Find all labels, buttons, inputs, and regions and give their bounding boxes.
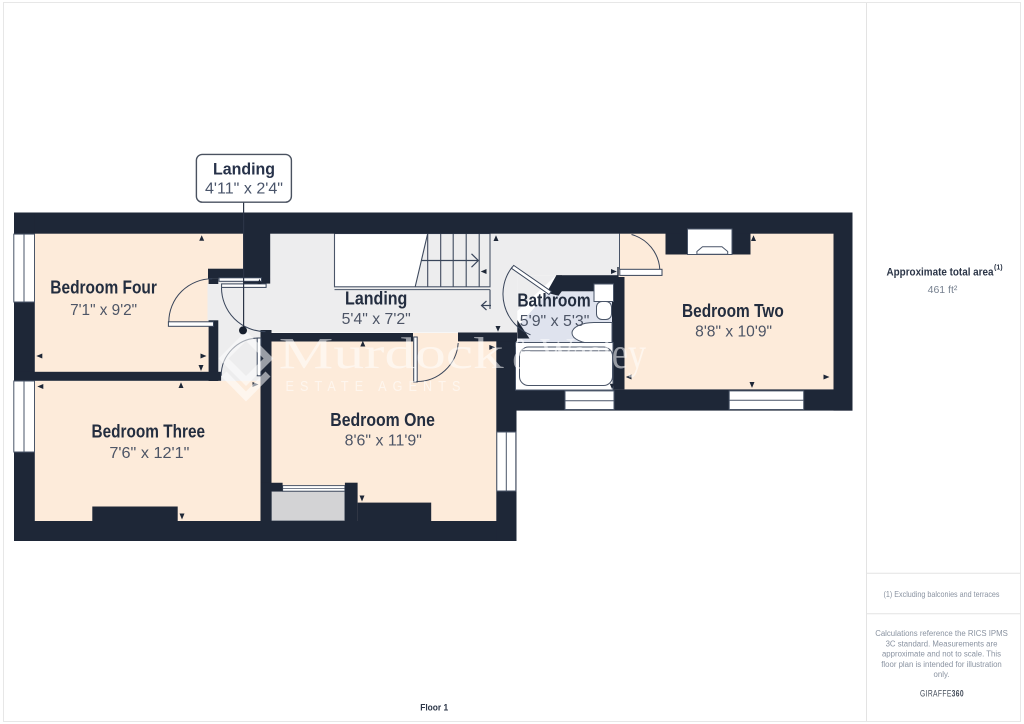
svg-text:Murdock: Murdock — [279, 329, 504, 378]
svg-text:5'9" x 5'3": 5'9" x 5'3" — [520, 313, 590, 330]
svg-text:only.: only. — [934, 670, 950, 679]
svg-text:Floor 1: Floor 1 — [420, 703, 449, 714]
svg-text:8'8" x 10'9": 8'8" x 10'9" — [695, 323, 772, 340]
svg-text:Bedroom Four: Bedroom Four — [50, 278, 157, 298]
svg-text:8'6" x 11'9": 8'6" x 11'9" — [345, 432, 422, 449]
svg-text:GIRAFFE360: GIRAFFE360 — [920, 689, 964, 699]
svg-text:Bathroom: Bathroom — [517, 291, 590, 311]
svg-text:approximate and not to scale.: approximate and not to scale. This — [882, 650, 1001, 659]
svg-text:Landing: Landing — [345, 289, 407, 309]
svg-text:Wasley: Wasley — [540, 329, 646, 378]
svg-text:461 ft²: 461 ft² — [928, 284, 958, 296]
svg-text:(1) Excluding balconies and te: (1) Excluding balconies and terraces — [884, 590, 1000, 599]
svg-text:4'11" x 2'4": 4'11" x 2'4" — [205, 181, 283, 198]
svg-text:Calculations reference the RIC: Calculations reference the RICS IPMS — [875, 629, 1008, 638]
svg-text:&: & — [513, 329, 531, 378]
svg-text:5'4" x 7'2": 5'4" x 7'2" — [342, 311, 411, 328]
svg-text:7'6" x 12'1": 7'6" x 12'1" — [109, 445, 189, 462]
svg-text:ESTATE AGENTS: ESTATE AGENTS — [286, 379, 467, 395]
svg-text:Landing: Landing — [213, 160, 275, 179]
svg-text:floor plan is intended for ill: floor plan is intended for illustration — [881, 660, 1002, 669]
svg-text:Bedroom One: Bedroom One — [330, 410, 435, 430]
svg-text:Bedroom Three: Bedroom Three — [92, 421, 206, 441]
svg-text:3C standard. Measurements are: 3C standard. Measurements are — [886, 639, 998, 648]
svg-text:Bedroom Two: Bedroom Two — [682, 301, 784, 321]
svg-text:(1): (1) — [994, 265, 1003, 272]
svg-text:7'1" x 9'2": 7'1" x 9'2" — [70, 302, 137, 319]
svg-text:Approximate total area: Approximate total area — [887, 267, 995, 279]
